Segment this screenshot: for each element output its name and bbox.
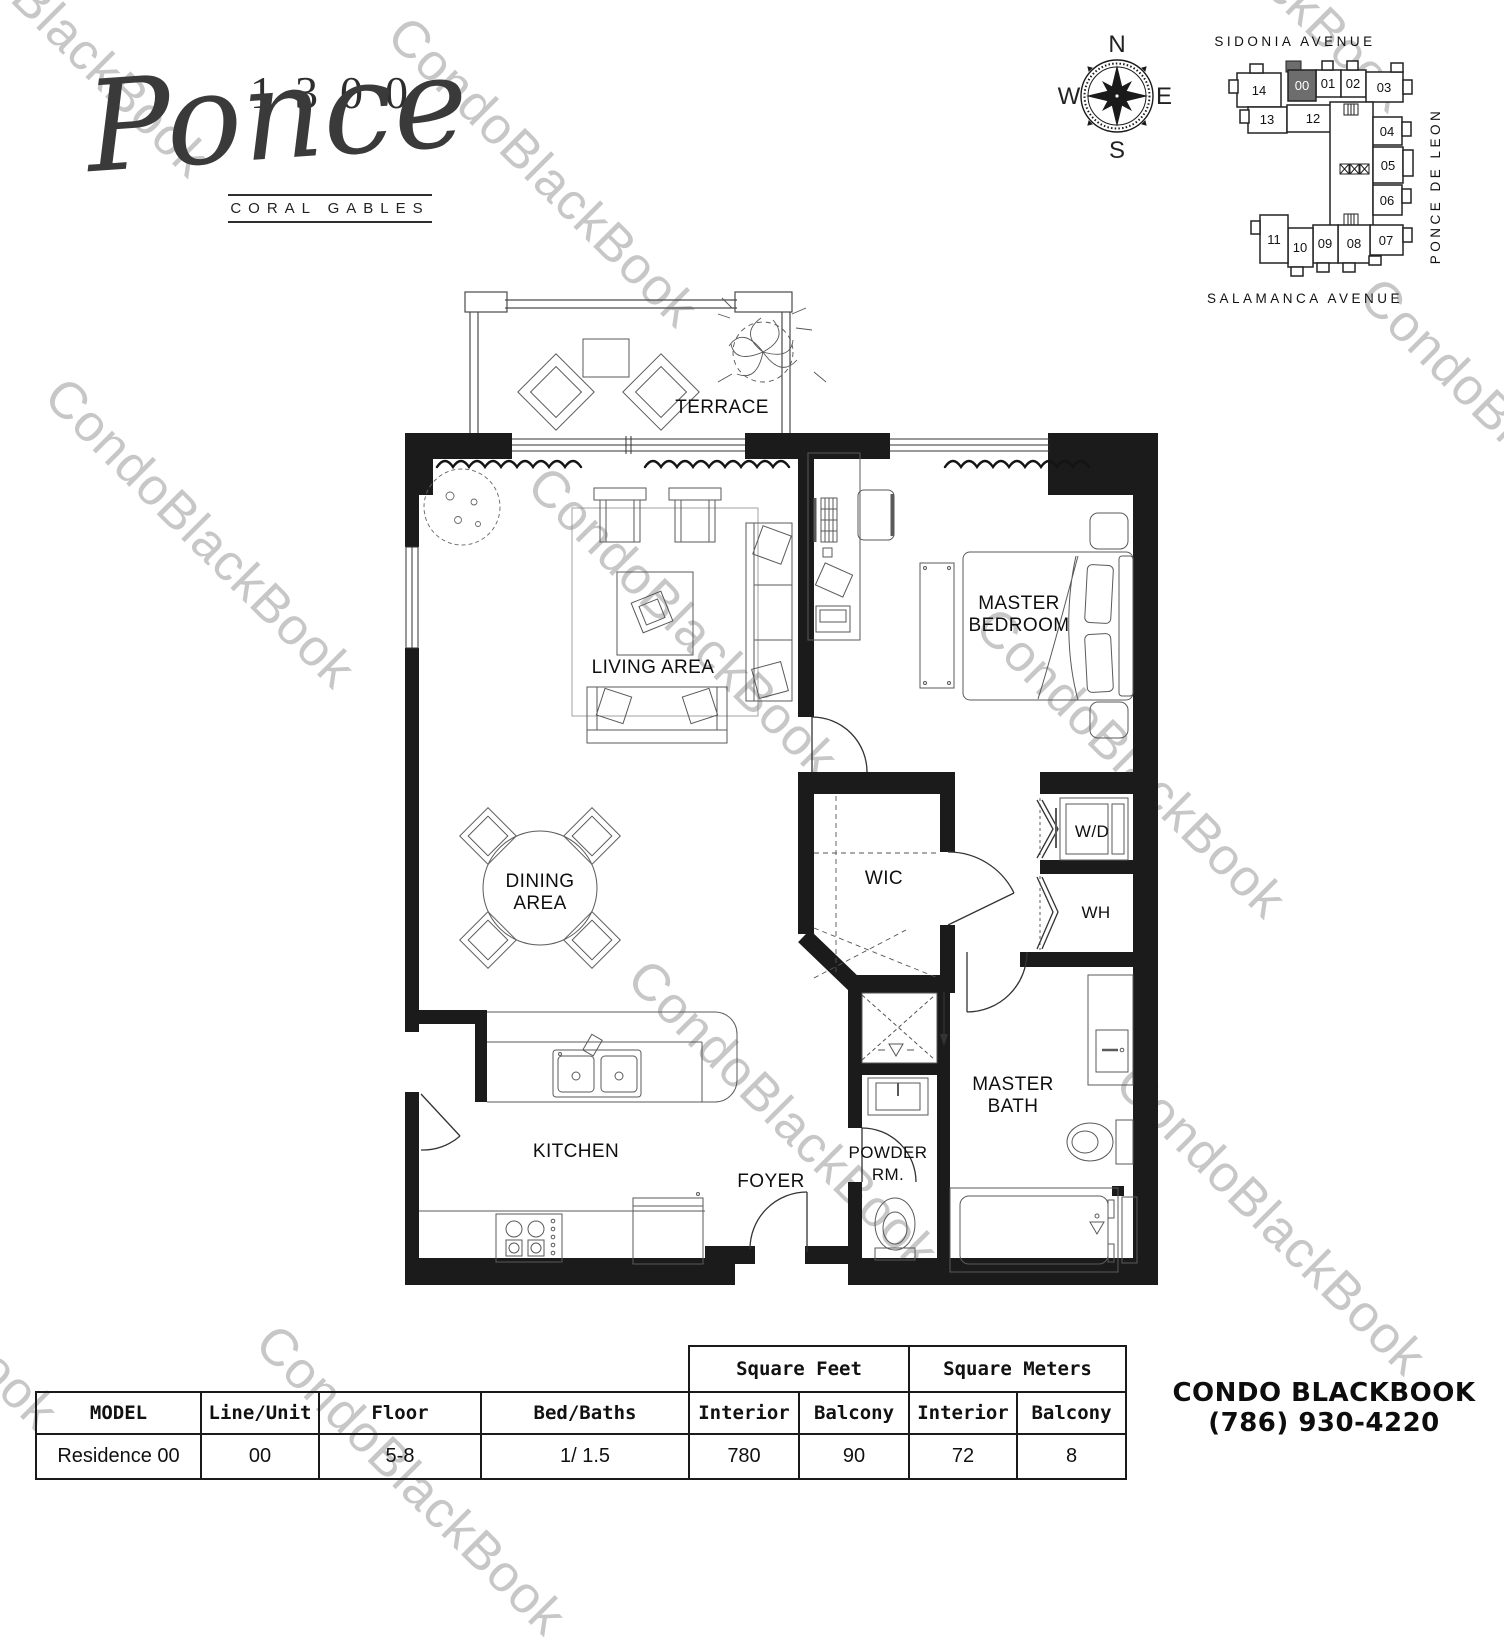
table-group-square-feet: Square Feet	[689, 1346, 909, 1392]
label-powder-2: RM.	[872, 1165, 904, 1184]
keyplan-unit-12: 12	[1306, 111, 1320, 126]
compass-w: W	[1058, 83, 1081, 110]
compass-e: E	[1156, 83, 1172, 110]
col-interior-m: Interior	[909, 1392, 1017, 1434]
cell-model: Residence 00	[36, 1434, 201, 1479]
compass-s: S	[1109, 137, 1125, 164]
table-row: Residence 00 00 5-8 1/ 1.5 780 90 72 8	[36, 1434, 1126, 1479]
label-master-bath-1: MASTER	[972, 1074, 1054, 1095]
keyplan-unit-09: 09	[1318, 236, 1332, 251]
label-living: LIVING AREA	[592, 657, 715, 678]
walls	[405, 433, 1158, 1285]
label-powder-1: POWDER	[849, 1143, 928, 1162]
label-wic: WIC	[865, 868, 903, 889]
living-plant-icon	[424, 469, 500, 545]
keyplan-unit-14: 14	[1252, 83, 1266, 98]
keyplan-unit-06: 06	[1380, 193, 1394, 208]
col-balcony-m: Balcony	[1017, 1392, 1126, 1434]
col-model: MODEL	[36, 1392, 201, 1434]
floorplan-sheet: { "brand": {"number": "1300", "name": "P…	[0, 0, 1504, 1502]
living-furniture	[572, 488, 792, 743]
street-ponce-de-leon: PONCE DE LEON	[1428, 108, 1443, 265]
label-wh: WH	[1081, 903, 1110, 922]
kitchen-fixtures	[419, 1012, 737, 1264]
table-group-square-meters: Square Meters	[909, 1346, 1126, 1392]
col-floor: Floor	[319, 1392, 481, 1434]
street-salamanca: SALAMANCA AVENUE	[1207, 291, 1403, 306]
keyplan-unit-02: 02	[1346, 76, 1360, 91]
footer-phone: (786) 930-4220	[1140, 1408, 1504, 1438]
curtain-waves	[437, 461, 1089, 467]
floorplan-canvas: N S W E	[0, 0, 1504, 1502]
keyplan-unit-07: 07	[1379, 233, 1393, 248]
bath-fixtures	[950, 975, 1137, 1272]
label-wd: W/D	[1075, 822, 1109, 841]
bedroom-furniture	[808, 453, 1133, 738]
label-master-bed-2: BEDROOM	[969, 615, 1070, 636]
label-foyer: FOYER	[737, 1171, 804, 1192]
keyplan-unit-05: 05	[1381, 158, 1395, 173]
terrace-plant-icon	[718, 298, 826, 382]
compass-rose-icon	[1081, 60, 1153, 132]
keyplan: 14 00 01 02 03 13 12 04 05 06 07 08 09 1…	[1207, 34, 1443, 306]
keyplan-unit-13: 13	[1260, 112, 1274, 127]
spec-table: Square Feet Square Meters MODEL Line/Uni…	[35, 1345, 1127, 1480]
terrace-furniture	[518, 339, 699, 430]
street-sidonia: SIDONIA AVENUE	[1214, 34, 1375, 49]
label-master-bath-2: BATH	[988, 1096, 1039, 1117]
footer: CONDO BLACKBOOK (786) 930-4220	[1140, 1378, 1504, 1438]
cell-interior-ft: 780	[689, 1434, 799, 1479]
cell-balcony-m: 8	[1017, 1434, 1126, 1479]
label-dining-1: DINING	[506, 871, 575, 892]
footer-company: CONDO BLACKBOOK	[1140, 1378, 1504, 1408]
keyplan-unit-00: 00	[1295, 78, 1309, 93]
cell-floor: 5-8	[319, 1434, 481, 1479]
label-dining-2: AREA	[513, 893, 566, 914]
cell-line-unit: 00	[201, 1434, 319, 1479]
shower	[862, 993, 937, 1063]
table-spacer	[36, 1346, 689, 1392]
keyplan-unit-11: 11	[1267, 232, 1281, 247]
cell-balcony-ft: 90	[799, 1434, 909, 1479]
col-interior-ft: Interior	[689, 1392, 799, 1434]
keyplan-unit-04: 04	[1380, 124, 1394, 139]
keyplan-unit-03: 03	[1377, 80, 1391, 95]
col-bed-baths: Bed/Baths	[481, 1392, 689, 1434]
cell-bed-baths: 1/ 1.5	[481, 1434, 689, 1479]
label-terrace: TERRACE	[675, 397, 769, 418]
label-kitchen: KITCHEN	[533, 1141, 619, 1162]
wic-chamfer-wall	[804, 936, 856, 986]
compass-n: N	[1108, 31, 1125, 58]
cell-interior-m: 72	[909, 1434, 1017, 1479]
col-balcony-ft: Balcony	[799, 1392, 909, 1434]
windows	[406, 436, 1050, 648]
label-master-bed-1: MASTER	[978, 593, 1060, 614]
col-line-unit: Line/Unit	[201, 1392, 319, 1434]
keyplan-unit-08: 08	[1347, 236, 1361, 251]
keyplan-unit-10: 10	[1293, 240, 1307, 255]
keyplan-unit-01: 01	[1321, 76, 1335, 91]
